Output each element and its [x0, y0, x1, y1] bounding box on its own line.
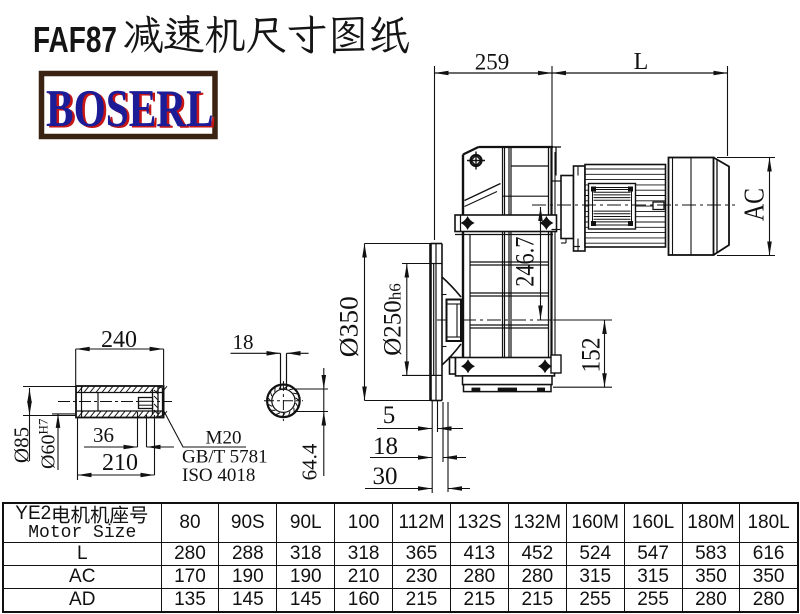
- svg-text:FAF87: FAF87: [33, 19, 117, 60]
- svg-text:AC: AC: [739, 188, 771, 221]
- svg-text:36: 36: [93, 423, 114, 447]
- svg-text:152: 152: [577, 338, 606, 373]
- svg-text:210: 210: [102, 450, 138, 476]
- svg-text:18: 18: [233, 330, 254, 354]
- svg-text:BOSERL: BOSERL: [46, 80, 214, 138]
- svg-text:ISO 4018: ISO 4018: [182, 465, 255, 486]
- svg-text:30: 30: [373, 463, 398, 490]
- svg-text:L: L: [634, 49, 649, 75]
- svg-text:Ø350: Ø350: [335, 296, 364, 357]
- svg-text:Ø250h6: Ø250h6: [380, 283, 407, 356]
- svg-text:M20: M20: [206, 428, 242, 449]
- svg-text:5: 5: [383, 402, 396, 429]
- svg-text:18: 18: [373, 433, 398, 460]
- svg-text:Ø60H7: Ø60H7: [36, 418, 60, 469]
- svg-text:246.7: 246.7: [511, 237, 540, 287]
- svg-text:240: 240: [101, 327, 137, 353]
- svg-text:64.4: 64.4: [298, 443, 322, 480]
- svg-text:259: 259: [475, 50, 510, 75]
- svg-text:Ø85: Ø85: [10, 427, 34, 463]
